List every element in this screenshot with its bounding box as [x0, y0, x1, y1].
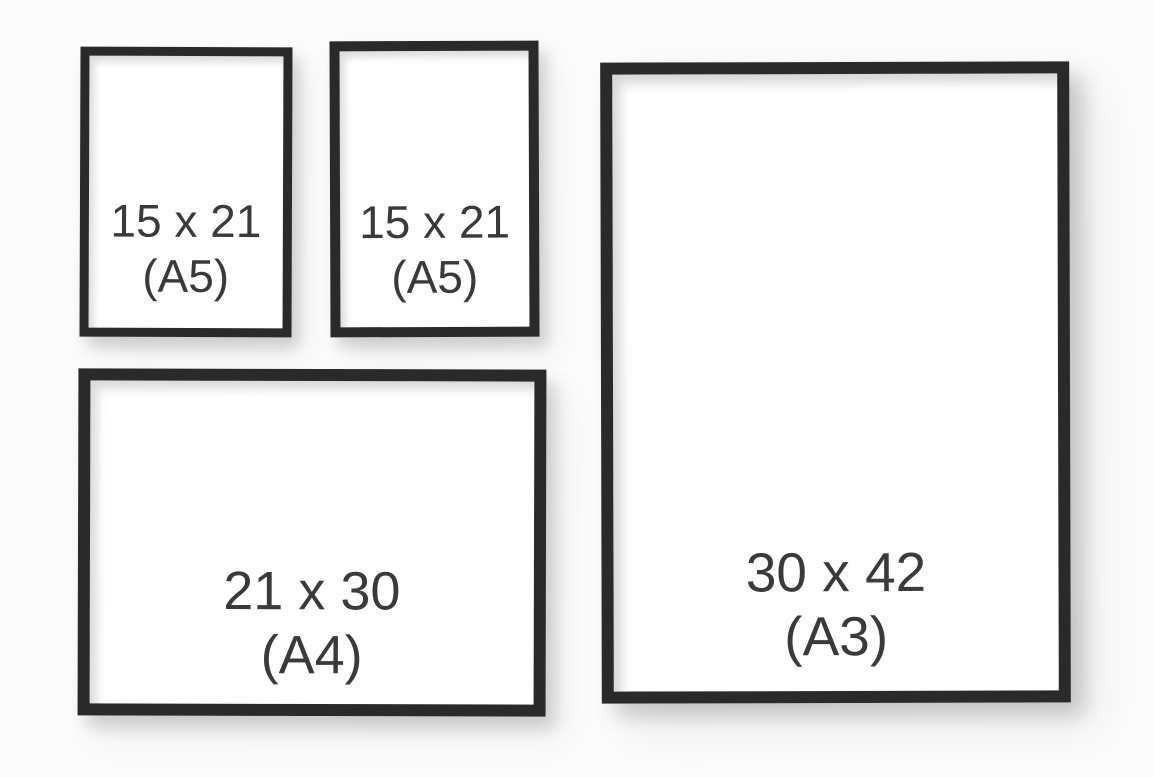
frame-a3: 30 x 42 (A3)	[600, 61, 1071, 703]
frame-a4-label: 21 x 30 (A4)	[90, 560, 534, 689]
size-text: 15 x 21	[89, 193, 283, 249]
format-text: (A5)	[340, 250, 529, 306]
size-text: 30 x 42	[613, 541, 1058, 606]
size-text: 15 x 21	[340, 194, 529, 250]
frame-a5-middle: 15 x 21 (A5)	[329, 41, 539, 338]
frame-a3-label: 30 x 42 (A3)	[613, 541, 1058, 670]
format-text: (A5)	[89, 249, 283, 305]
frame-a4-paper: 21 x 30 (A4)	[90, 380, 535, 704]
format-text: (A4)	[90, 623, 534, 688]
format-text: (A3)	[614, 604, 1059, 669]
frame-a5-left: 15 x 21 (A5)	[79, 47, 292, 338]
frame-a4: 21 x 30 (A4)	[78, 368, 547, 716]
frame-a5-left-paper: 15 x 21 (A5)	[89, 56, 284, 329]
frame-a5-left-label: 15 x 21 (A5)	[89, 193, 283, 304]
size-text: 21 x 30	[90, 560, 534, 625]
frame-a5-middle-paper: 15 x 21 (A5)	[340, 51, 530, 328]
frame-size-comparison-image: 15 x 21 (A5) 15 x 21 (A5) 21 x 30 (A4) 3…	[0, 0, 1154, 777]
frame-a5-middle-label: 15 x 21 (A5)	[340, 194, 529, 305]
frame-a3-paper: 30 x 42 (A3)	[612, 73, 1059, 691]
